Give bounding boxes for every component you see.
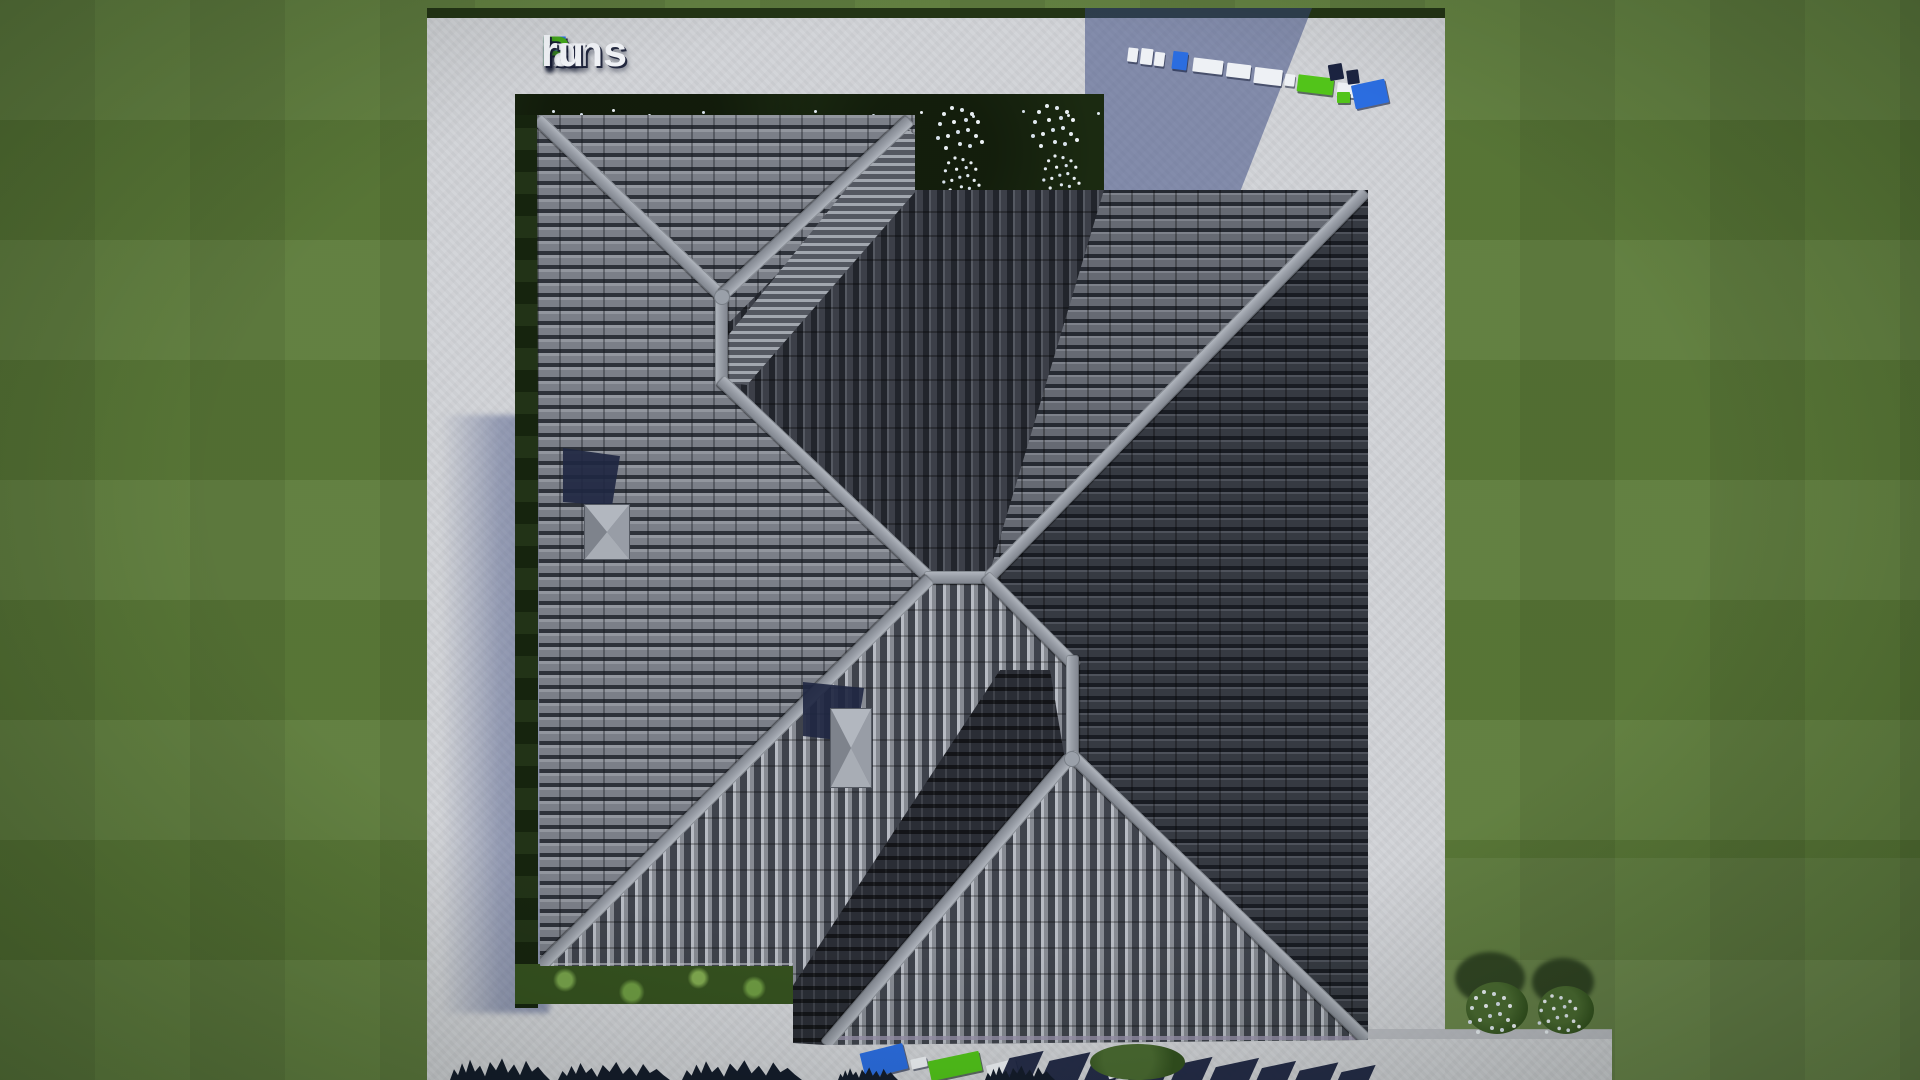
logo-block (1284, 74, 1295, 87)
logo-block (1154, 52, 1166, 67)
bottom-garden-strip (515, 964, 793, 1004)
white-flower-cluster (1053, 154, 1056, 157)
ridge-junction (1064, 751, 1080, 767)
logo-block-shadow (1328, 63, 1345, 81)
logo-block-green (1337, 92, 1350, 103)
ridge-vertical (1066, 655, 1079, 760)
logo-block (1140, 48, 1154, 65)
logo-block (910, 1056, 928, 1069)
flower-bush (1466, 982, 1528, 1034)
watermark-letter: ru (541, 28, 584, 77)
fixplans-3d-logo-top-end (1325, 58, 1395, 113)
ridge-junction (714, 289, 730, 305)
green-bush-bottom (1090, 1044, 1185, 1080)
chimney-2 (830, 708, 872, 788)
hip-roof (537, 115, 1368, 1047)
left-hedge-strip (515, 115, 538, 1008)
eave-flower-dots (552, 110, 555, 113)
logo-block-shadow (1346, 69, 1360, 85)
eave-trim (540, 963, 793, 965)
white-flower-cluster (950, 106, 954, 110)
aerial-render-scene: FixPlans.ru (0, 0, 1920, 1080)
logo-block (1226, 62, 1252, 79)
logo-block (1192, 57, 1223, 75)
white-flower-cluster (1482, 990, 1486, 994)
logo-block-green (927, 1051, 982, 1080)
logo-block (1253, 67, 1283, 86)
chimney-shadow (563, 448, 620, 506)
logo-block-blue (1171, 51, 1188, 71)
white-flower-cluster (1045, 104, 1049, 108)
chimney-1 (584, 504, 630, 560)
flower-bush (1538, 986, 1594, 1034)
white-flower-cluster (953, 156, 956, 159)
white-flower-cluster (1550, 994, 1554, 998)
logo-block (1127, 47, 1139, 62)
